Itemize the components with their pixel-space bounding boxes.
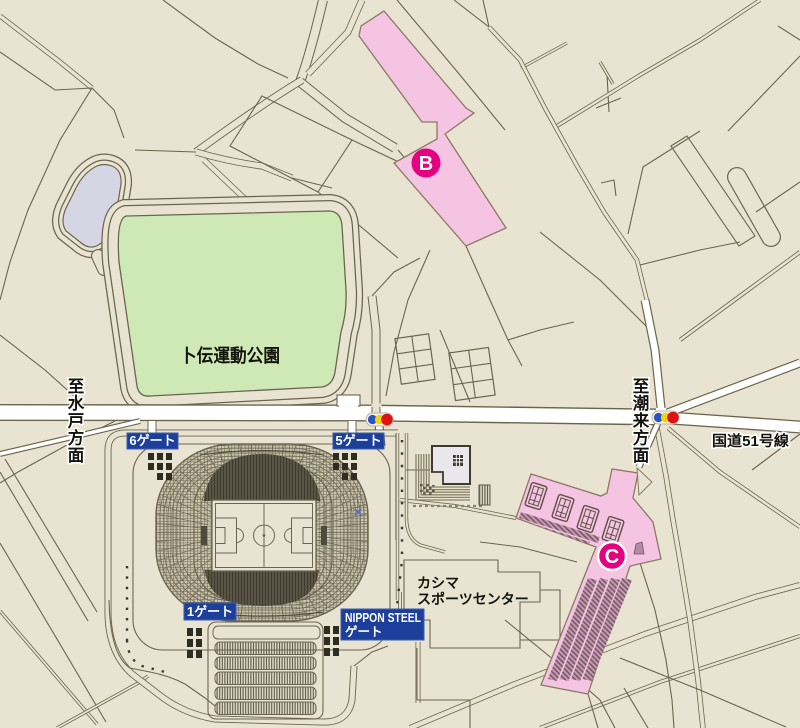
svg-text:スポーツセンター: スポーツセンター [417, 591, 529, 607]
svg-text:至: 至 [68, 377, 85, 396]
svg-text:ゲート: ゲート [345, 624, 383, 639]
svg-text:6ゲート: 6ゲート [129, 433, 175, 448]
svg-text:面: 面 [68, 447, 85, 465]
svg-text:5ゲート: 5ゲート [335, 433, 381, 448]
svg-text:1ゲート: 1ゲート [187, 604, 233, 619]
svg-text:潮: 潮 [633, 393, 650, 413]
svg-text:NIPPON STEEL: NIPPON STEEL [345, 611, 421, 625]
svg-text:✕: ✕ [353, 507, 362, 519]
svg-text:来: 来 [632, 410, 650, 430]
svg-text:戸: 戸 [68, 411, 85, 430]
svg-text:B: B [419, 153, 433, 175]
svg-text:C: C [605, 546, 619, 568]
svg-text:方: 方 [633, 428, 650, 448]
svg-text:至: 至 [633, 377, 650, 396]
svg-text:面: 面 [633, 447, 650, 465]
svg-text:方: 方 [68, 428, 85, 448]
svg-text:カシマ: カシマ [417, 575, 459, 591]
svg-text:卜伝運動公園: 卜伝運動公園 [180, 345, 280, 366]
svg-text:水: 水 [68, 393, 85, 413]
svg-text:国道51号線: 国道51号線 [712, 432, 790, 450]
